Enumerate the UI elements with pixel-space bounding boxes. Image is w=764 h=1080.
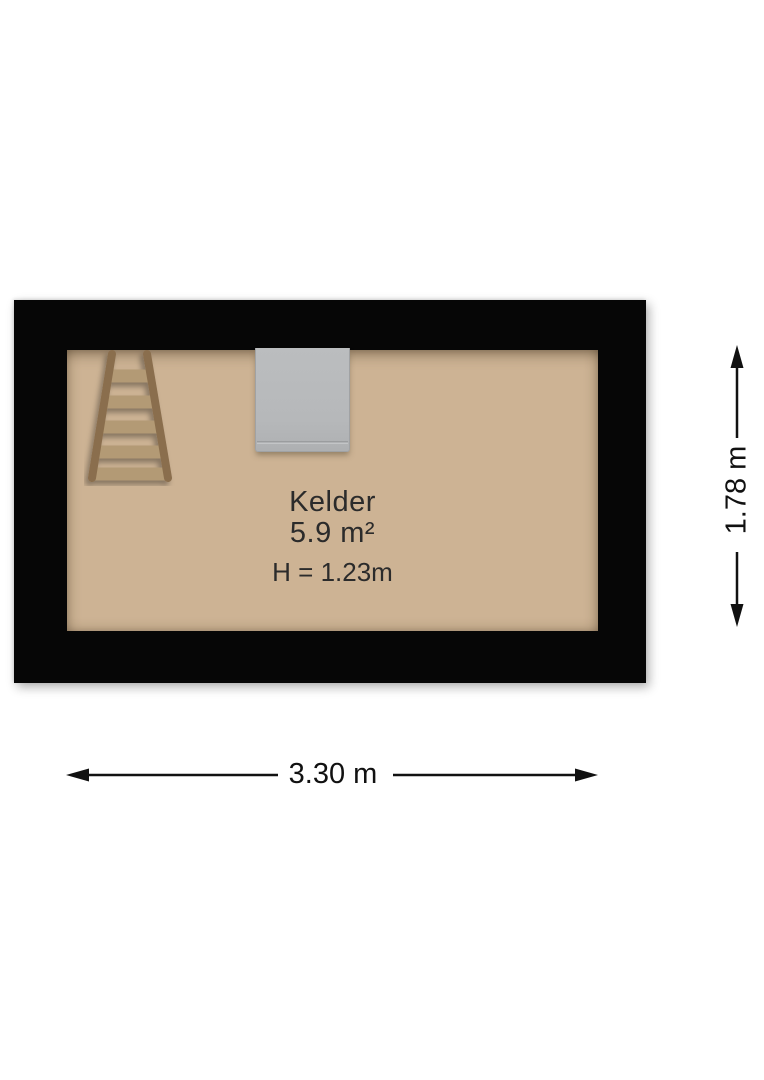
floor-plan: Kelder 5.9 m² H = 1.23m [14, 300, 646, 683]
width-dimension-label: 3.30 m [289, 758, 378, 791]
room-area: 5.9 m² [67, 518, 598, 549]
room-name: Kelder [67, 486, 598, 518]
width-dimension: 3.30 m [60, 761, 606, 789]
height-dimension: 1.78 m [722, 342, 752, 630]
boiler-icon [255, 348, 350, 452]
height-dimension-label: 1.78 m [721, 446, 754, 535]
room-label: Kelder 5.9 m² H = 1.23m [67, 486, 598, 587]
ladder-icon [84, 348, 176, 486]
room-ceiling-height: H = 1.23m [67, 557, 598, 587]
floorplan-canvas: { "plan": { "room": { "name": "Kelder", … [0, 0, 764, 1080]
boiler-seam [257, 441, 348, 444]
